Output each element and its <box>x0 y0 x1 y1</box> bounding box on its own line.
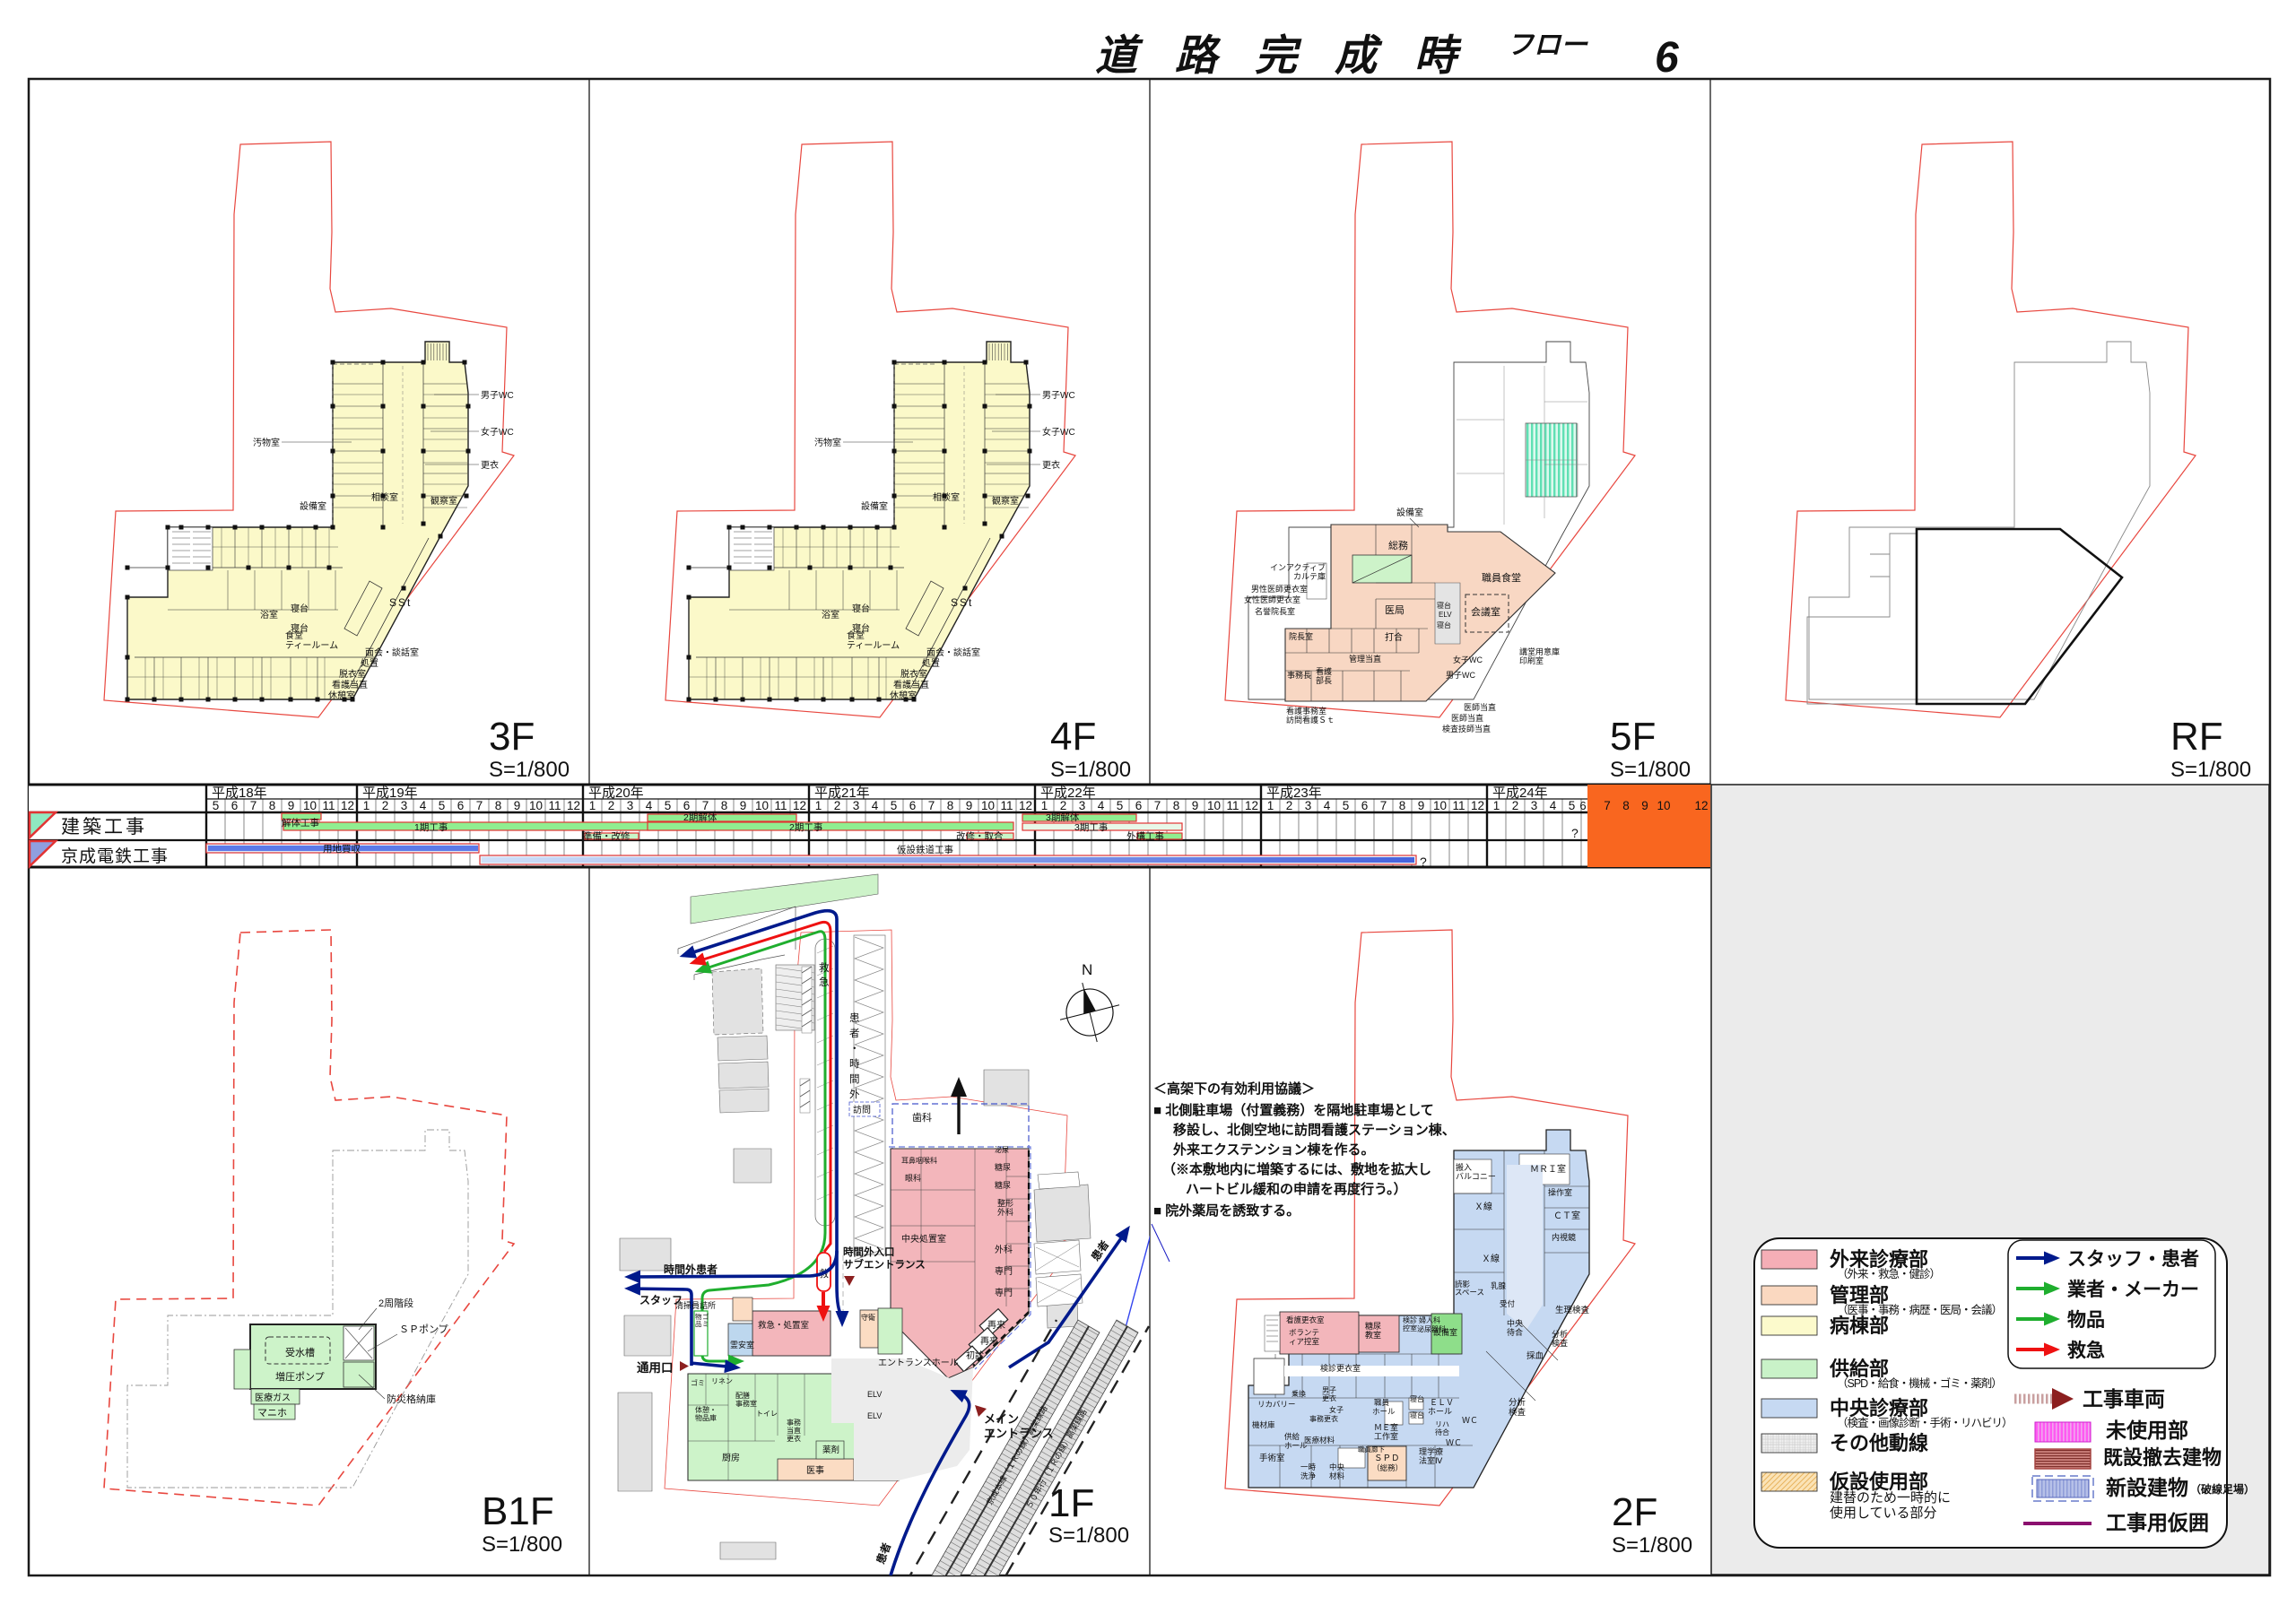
svg-text:厨房: 厨房 <box>722 1452 740 1463</box>
svg-text:分析: 分析 <box>1509 1397 1526 1408</box>
svg-text:医事: 医事 <box>806 1464 824 1476</box>
svg-text:12: 12 <box>1471 799 1484 812</box>
svg-text:待合: 待合 <box>1435 1428 1449 1436</box>
svg-text:10: 10 <box>1433 799 1447 812</box>
svg-text:守衛: 守衛 <box>861 1313 875 1322</box>
svg-text:生理検査: 生理検査 <box>1555 1305 1590 1315</box>
svg-text:ィア控室: ィア控室 <box>1289 1337 1320 1346</box>
svg-text:ＷＣ: ＷＣ <box>1446 1438 1462 1447</box>
svg-text:2期工事: 2期工事 <box>789 821 823 833</box>
svg-text:スペース: スペース <box>1455 1288 1484 1297</box>
svg-text:職員: 職員 <box>1374 1398 1390 1407</box>
svg-text:4F: 4F <box>1050 715 1096 759</box>
svg-text:事務室: 事務室 <box>735 1399 757 1408</box>
svg-text:検査: 検査 <box>1509 1407 1526 1418</box>
svg-text:平成23年: 平成23年 <box>1266 785 1322 801</box>
svg-text:3: 3 <box>1079 799 1086 812</box>
svg-text:ELV: ELV <box>867 1411 882 1420</box>
svg-text:（SPD・給食・機械・ゴミ・薬剤）: （SPD・給食・機械・ゴミ・薬剤） <box>1837 1376 2002 1390</box>
svg-text:SSt: SSt <box>389 596 412 609</box>
svg-text:6: 6 <box>231 799 239 812</box>
svg-text:10: 10 <box>1657 799 1670 812</box>
svg-text:4: 4 <box>420 799 427 812</box>
svg-text:寝台: 寝台 <box>1437 621 1451 629</box>
svg-text:7: 7 <box>1604 799 1611 812</box>
svg-text:7: 7 <box>928 799 935 812</box>
svg-text:看護事務室: 看護事務室 <box>1286 706 1326 716</box>
svg-text:2: 2 <box>1286 799 1293 812</box>
svg-text:採血: 採血 <box>1526 1350 1544 1361</box>
svg-text:8: 8 <box>721 799 728 812</box>
svg-text:S=1/800: S=1/800 <box>482 1532 562 1557</box>
svg-text:医師当直: 医師当直 <box>1464 702 1496 712</box>
svg-text:受水槽: 受水槽 <box>285 1347 315 1358</box>
svg-text:1: 1 <box>589 799 596 812</box>
svg-text:2: 2 <box>608 799 615 812</box>
svg-text:リネン: リネン <box>711 1377 733 1385</box>
svg-text:設備室: 設備室 <box>1433 1327 1457 1337</box>
svg-text:分析: 分析 <box>1552 1329 1568 1339</box>
svg-text:12: 12 <box>1245 799 1258 812</box>
svg-text:整形: 整形 <box>997 1198 1013 1208</box>
svg-text:S=1/800: S=1/800 <box>1612 1533 1692 1558</box>
svg-text:職員食堂: 職員食堂 <box>1482 571 1521 584</box>
svg-text:建築工事: 建築工事 <box>61 817 147 838</box>
svg-text:8: 8 <box>495 799 502 812</box>
svg-text:10: 10 <box>1207 799 1221 812</box>
svg-text:7: 7 <box>1154 799 1161 812</box>
svg-text:物品庫: 物品庫 <box>695 1413 717 1422</box>
svg-text:病棟部: 病棟部 <box>1830 1315 1889 1337</box>
svg-text:寝台: 寝台 <box>291 603 309 614</box>
svg-text:工事用仮囲: 工事用仮囲 <box>2106 1511 2209 1534</box>
svg-text:洗浄: 洗浄 <box>1300 1471 1317 1480</box>
svg-text:7: 7 <box>250 799 257 812</box>
svg-text:3期工事: 3期工事 <box>1074 821 1109 833</box>
svg-text:N: N <box>1082 961 1092 978</box>
svg-text:女子WC: 女子WC <box>1453 655 1483 664</box>
svg-text:汚物室: 汚物室 <box>253 437 280 448</box>
svg-text:外科: 外科 <box>997 1207 1013 1217</box>
svg-text:訪問: 訪問 <box>853 1104 871 1115</box>
svg-text:医師当直: 医師当直 <box>1451 713 1483 723</box>
svg-text:3: 3 <box>627 799 634 812</box>
svg-text:その他動線: その他動線 <box>1830 1432 1928 1454</box>
svg-text:管理当直: 管理当直 <box>1349 654 1381 664</box>
svg-text:工作室: 工作室 <box>1374 1431 1398 1441</box>
svg-text:設備室: 設備室 <box>1396 507 1423 518</box>
svg-text:処置: 処置 <box>361 657 378 669</box>
svg-text:平成18年: 平成18年 <box>212 785 267 801</box>
svg-text:中央処置室: 中央処置室 <box>901 1233 946 1245</box>
svg-text:＜高架下の有効利用協議＞: ＜高架下の有効利用協議＞ <box>1153 1081 1315 1097</box>
svg-text:平成19年: 平成19年 <box>362 785 418 801</box>
svg-text:ＭＲＩ室: ＭＲＩ室 <box>1530 1163 1566 1175</box>
svg-text:仮設鉄道工事: 仮設鉄道工事 <box>897 844 953 855</box>
svg-text:11: 11 <box>774 799 787 812</box>
svg-text:ホール: ホール <box>1428 1407 1452 1416</box>
svg-text:ELV: ELV <box>1439 611 1452 619</box>
svg-text:12: 12 <box>567 799 580 812</box>
svg-text:中央: 中央 <box>1507 1318 1523 1328</box>
svg-text:講堂用意庫: 講堂用意庫 <box>1519 647 1560 656</box>
svg-text:泌尿: 泌尿 <box>995 1145 1009 1154</box>
svg-text:2: 2 <box>834 799 841 812</box>
svg-text:1F: 1F <box>1048 1481 1094 1525</box>
svg-text:9: 9 <box>740 799 747 812</box>
svg-text:再来: 再来 <box>980 1336 998 1347</box>
svg-text:待合: 待合 <box>1507 1327 1523 1337</box>
svg-text:当直: 当直 <box>787 1426 801 1435</box>
svg-text:5: 5 <box>213 799 220 812</box>
svg-text:（検査・画像診断・手術・リハビリ）: （検査・画像診断・手術・リハビリ） <box>1837 1416 2013 1429</box>
svg-text:3: 3 <box>1305 799 1312 812</box>
svg-text:外科: 外科 <box>995 1244 1013 1255</box>
svg-text:6: 6 <box>1361 799 1369 812</box>
svg-text:医療ガス: 医療ガス <box>255 1392 291 1403</box>
svg-text:9: 9 <box>1192 799 1199 812</box>
svg-text:面会・談話室: 面会・談話室 <box>365 647 419 658</box>
svg-text:中央: 中央 <box>1329 1462 1345 1471</box>
svg-text:道路完成時: 道路完成時 <box>1095 31 1494 79</box>
svg-text:印刷室: 印刷室 <box>1519 655 1544 665</box>
svg-text:検査: 検査 <box>1552 1338 1568 1348</box>
svg-text:ゴミ: ゴミ <box>702 1312 709 1328</box>
svg-text:12: 12 <box>793 799 806 812</box>
svg-text:11: 11 <box>1226 799 1239 812</box>
svg-text:物品: 物品 <box>2067 1309 2105 1331</box>
svg-text:9: 9 <box>514 799 521 812</box>
svg-text:1期工事: 1期工事 <box>414 821 448 833</box>
svg-text:京成電鉄工事: 京成電鉄工事 <box>61 846 169 866</box>
svg-text:平成21年: 平成21年 <box>814 785 870 801</box>
svg-text:S=1/800: S=1/800 <box>1048 1523 1129 1548</box>
svg-text:眼科: 眼科 <box>905 1173 921 1183</box>
svg-text:訪問看護Ｓｔ: 訪問看護Ｓｔ <box>1286 715 1335 725</box>
svg-text:S=1/800: S=1/800 <box>489 758 570 782</box>
svg-text:ボランテ: ボランテ <box>1289 1328 1319 1337</box>
svg-text:救急: 救急 <box>2067 1340 2105 1361</box>
svg-text:12: 12 <box>1694 799 1708 812</box>
svg-text:男子WC: 男子WC <box>481 390 514 401</box>
svg-text:8: 8 <box>947 799 954 812</box>
svg-text:ＷＣ: ＷＣ <box>1462 1416 1478 1425</box>
svg-text:6: 6 <box>683 799 691 812</box>
svg-text:名誉院長室: 名誉院長室 <box>1255 606 1295 616</box>
svg-text:看護更衣室: 看護更衣室 <box>1286 1315 1325 1324</box>
svg-text:2: 2 <box>382 799 389 812</box>
svg-text:職員廊下: 職員廊下 <box>1358 1445 1385 1454</box>
svg-text:リハ: リハ <box>1435 1420 1449 1428</box>
svg-text:4: 4 <box>1324 799 1331 812</box>
svg-text:材料: 材料 <box>1329 1471 1345 1480</box>
svg-text:手術室: 手術室 <box>1259 1453 1285 1463</box>
svg-text:10: 10 <box>981 799 995 812</box>
svg-text:初診: 初診 <box>966 1350 984 1361</box>
svg-text:耳鼻咽喉科: 耳鼻咽喉科 <box>901 1156 937 1165</box>
svg-text:再来: 再来 <box>987 1320 1005 1331</box>
svg-text:更衣: 更衣 <box>1322 1393 1336 1402</box>
svg-text:供給: 供給 <box>1284 1432 1300 1441</box>
svg-text:脱衣室: 脱衣室 <box>339 668 366 680</box>
svg-text:ティールーム: ティールーム <box>285 640 338 651</box>
svg-text:休憩室: 休憩室 <box>328 690 355 701</box>
svg-text:院長室: 院長室 <box>1289 631 1313 641</box>
svg-text:（総務）: （総務） <box>1372 1463 1403 1472</box>
svg-text:?: ? <box>1571 826 1578 840</box>
svg-text:1: 1 <box>1267 799 1274 812</box>
svg-text:男性医師更衣室: 男性医師更衣室 <box>1251 584 1308 594</box>
svg-text:ＭＥ室: ＭＥ室 <box>1374 1422 1398 1432</box>
svg-text:6: 6 <box>1655 34 1679 82</box>
svg-text:インアクティブ: インアクティブ <box>1270 562 1326 572</box>
svg-text:観察室: 観察室 <box>430 495 457 507</box>
svg-text:ハートビル緩和の申請を再度行う。）: ハートビル緩和の申請を再度行う。） <box>1186 1181 1407 1197</box>
svg-text:専門: 専門 <box>995 1288 1013 1298</box>
svg-text:救急・処置室: 救急・処置室 <box>758 1320 809 1331</box>
svg-text:総務: 総務 <box>1388 539 1408 551</box>
svg-text:ELV: ELV <box>867 1390 882 1399</box>
svg-text:外来エクステンション棟を作る。: 外来エクステンション棟を作る。 <box>1172 1141 1375 1158</box>
svg-text:患者: 患者 <box>874 1541 893 1566</box>
svg-text:RF: RF <box>2170 715 2223 759</box>
svg-text:時間外入口: 時間外入口 <box>843 1245 895 1258</box>
svg-text:S=1/800: S=1/800 <box>1050 758 1131 782</box>
svg-text:6: 6 <box>1579 799 1586 812</box>
svg-text:相談室: 相談室 <box>371 491 398 503</box>
svg-text:医局: 医局 <box>1385 604 1405 616</box>
svg-text:更衣: 更衣 <box>787 1434 801 1443</box>
svg-text:用地買収: 用地買収 <box>323 843 361 855</box>
svg-text:更衣: 更衣 <box>481 459 499 471</box>
svg-text:6: 6 <box>909 799 917 812</box>
svg-text:事務: 事務 <box>787 1418 801 1427</box>
svg-text:法室Ⅳ: 法室Ⅳ <box>1419 1455 1443 1465</box>
svg-text:看護: 看護 <box>1316 666 1332 676</box>
svg-text:（破線足場）: （破線足場） <box>2190 1482 2255 1496</box>
svg-text:6: 6 <box>1135 799 1143 812</box>
svg-text:11: 11 <box>548 799 561 812</box>
svg-text:7: 7 <box>702 799 709 812</box>
svg-text:移設し、北側空地に訪問看護ステーション棟、: 移設し、北側空地に訪問看護ステーション棟、 <box>1173 1122 1456 1138</box>
svg-text:会議室: 会議室 <box>1471 605 1500 618</box>
svg-text:未使用部: 未使用部 <box>2106 1419 2188 1442</box>
svg-text:エントランスホール: エントランスホール <box>878 1358 959 1368</box>
svg-text:4: 4 <box>872 799 879 812</box>
svg-text:搬入: 搬入 <box>1456 1162 1472 1172</box>
svg-text:4: 4 <box>1550 799 1557 812</box>
svg-text:使用している部分: 使用している部分 <box>1830 1506 1937 1521</box>
svg-text:事務更衣: 事務更衣 <box>1309 1414 1338 1423</box>
svg-text:2周階段: 2周階段 <box>378 1297 413 1309</box>
svg-text:建替のため一時的に: 建替のため一時的に <box>1830 1490 1951 1506</box>
svg-text:5: 5 <box>439 799 446 812</box>
svg-text:改修・取合: 改修・取合 <box>956 830 1004 842</box>
svg-text:打合: 打合 <box>1385 631 1403 643</box>
svg-text:8: 8 <box>1173 799 1180 812</box>
svg-text:寝台: 寝台 <box>1410 1394 1424 1403</box>
svg-text:歯科: 歯科 <box>912 1111 932 1124</box>
svg-text:操作室: 操作室 <box>1548 1187 1572 1197</box>
svg-text:ゴミ: ゴミ <box>691 1378 705 1387</box>
svg-text:1: 1 <box>815 799 822 812</box>
svg-text:3: 3 <box>401 799 408 812</box>
svg-text:10: 10 <box>755 799 769 812</box>
svg-text:8: 8 <box>1399 799 1406 812</box>
svg-text:2: 2 <box>1060 799 1067 812</box>
svg-text:4: 4 <box>646 799 653 812</box>
svg-text:S=1/800: S=1/800 <box>1610 758 1691 782</box>
svg-text:2: 2 <box>1512 799 1519 812</box>
svg-text:メイン: メイン <box>984 1412 1019 1426</box>
svg-text:S=1/800: S=1/800 <box>2170 758 2251 782</box>
svg-text:通用口: 通用口 <box>637 1361 674 1375</box>
svg-text:ホール: ホール <box>1372 1407 1396 1416</box>
svg-text:トイレ: トイレ <box>756 1410 778 1418</box>
svg-text:■ 院外薬局を誘致する。: ■ 院外薬局を誘致する。 <box>1153 1202 1300 1219</box>
svg-text:5: 5 <box>1569 799 1576 812</box>
svg-text:食堂: 食堂 <box>285 629 303 641</box>
svg-text:新設建物: 新設建物 <box>2106 1476 2188 1499</box>
svg-text:業者・メーカー: 業者・メーカー <box>2067 1279 2199 1300</box>
svg-text:浴室: 浴室 <box>260 609 278 621</box>
svg-text:平成24年: 平成24年 <box>1492 785 1548 801</box>
svg-text:検診更衣室: 検診更衣室 <box>1320 1363 1361 1373</box>
svg-text:5: 5 <box>1343 799 1350 812</box>
svg-text:7: 7 <box>476 799 483 812</box>
svg-text:工事車両: 工事車両 <box>2083 1387 2165 1410</box>
svg-text:内視鏡: 内視鏡 <box>1552 1232 1576 1242</box>
svg-text:防災格納庫: 防災格納庫 <box>387 1393 436 1405</box>
svg-text:受付: 受付 <box>1500 1299 1516 1308</box>
svg-text:一時: 一時 <box>1300 1462 1317 1471</box>
svg-text:糖尿: 糖尿 <box>995 1162 1011 1172</box>
svg-text:男子: 男子 <box>1322 1386 1336 1394</box>
svg-text:増圧ポンプ: 増圧ポンプ <box>275 1371 325 1383</box>
svg-text:10: 10 <box>303 799 317 812</box>
svg-text:5: 5 <box>891 799 898 812</box>
svg-text:看護当直: 看護当直 <box>332 679 368 690</box>
svg-text:理学療: 理学療 <box>1419 1446 1443 1456</box>
svg-text:寝台: 寝台 <box>1410 1410 1424 1419</box>
svg-text:機材庫: 機材庫 <box>1252 1420 1275 1429</box>
svg-text:設備室: 設備室 <box>300 500 326 512</box>
svg-text:時間外患者: 時間外患者 <box>664 1263 717 1276</box>
svg-text:既設撤去建物: 既設撤去建物 <box>2103 1446 2222 1469</box>
svg-text:検診: 検診 <box>1403 1315 1417 1324</box>
svg-text:平成20年: 平成20年 <box>588 785 644 801</box>
svg-text:事務長: 事務長 <box>1287 670 1311 680</box>
svg-text:5F: 5F <box>1610 715 1656 759</box>
svg-text:控室: 控室 <box>1403 1324 1417 1332</box>
svg-text:9: 9 <box>1641 799 1648 812</box>
svg-text:9: 9 <box>1418 799 1425 812</box>
svg-text:乗換: 乗換 <box>1291 1389 1306 1398</box>
svg-text:ＥＬＶ: ＥＬＶ <box>1430 1398 1454 1407</box>
svg-text:9: 9 <box>966 799 973 812</box>
svg-text:スタッフ・患者: スタッフ・患者 <box>2067 1248 2199 1270</box>
svg-text:1: 1 <box>1493 799 1500 812</box>
svg-text:8: 8 <box>1622 799 1630 812</box>
svg-text:5: 5 <box>1117 799 1124 812</box>
svg-text:体憩・: 体憩・ <box>695 1405 717 1414</box>
svg-text:物品: 物品 <box>695 1312 702 1328</box>
svg-text:（外来・救急・健診）: （外来・救急・健診） <box>1837 1267 1940 1280</box>
svg-text:リカバリー: リカバリー <box>1257 1400 1296 1409</box>
svg-text:9: 9 <box>288 799 295 812</box>
svg-text:■ 北側駐車場（付置義務）を隔地駐車場として: ■ 北側駐車場（付置義務）を隔地駐車場として <box>1153 1102 1434 1118</box>
svg-text:5: 5 <box>665 799 672 812</box>
svg-text:女子: 女子 <box>1329 1405 1344 1414</box>
svg-text:2期解体: 2期解体 <box>683 811 717 823</box>
svg-text:教室: 教室 <box>1365 1330 1381 1340</box>
svg-text:8: 8 <box>269 799 276 812</box>
svg-text:糖尿: 糖尿 <box>995 1180 1011 1190</box>
svg-text:4: 4 <box>1098 799 1105 812</box>
svg-text:男子WC: 男子WC <box>1446 671 1475 680</box>
svg-text:サブエントランス: サブエントランス <box>843 1258 926 1271</box>
svg-text:マニホ: マニホ <box>257 1407 287 1419</box>
svg-text:?: ? <box>1420 855 1427 869</box>
svg-text:11: 11 <box>322 799 335 812</box>
svg-text:10: 10 <box>529 799 543 812</box>
svg-text:準備・改修: 準備・改修 <box>583 830 631 842</box>
svg-text:バルコニー: バルコニー <box>1456 1172 1496 1181</box>
svg-text:12: 12 <box>341 799 354 812</box>
svg-text:医療材料: 医療材料 <box>1304 1436 1335 1445</box>
svg-text:解体工事: 解体工事 <box>282 817 319 829</box>
svg-text:カルテ庫: カルテ庫 <box>1293 571 1326 581</box>
svg-text:ＳＰポンプ: ＳＰポンプ <box>399 1324 448 1335</box>
svg-text:配膳: 配膳 <box>735 1391 750 1400</box>
svg-text:1: 1 <box>1041 799 1048 812</box>
svg-text:霊安室: 霊安室 <box>730 1340 754 1350</box>
svg-text:3: 3 <box>853 799 860 812</box>
svg-text:（※本敷地内に増築するには、敷地を拡大し: （※本敷地内に増築するには、敷地を拡大し <box>1162 1161 1431 1177</box>
svg-text:Ｘ線: Ｘ線 <box>1474 1201 1492 1212</box>
svg-text:婦人科: 婦人科 <box>1419 1315 1440 1324</box>
svg-text:フロー: フロー <box>1507 30 1588 60</box>
svg-text:3: 3 <box>1531 799 1538 812</box>
svg-text:外構工事: 外構工事 <box>1126 830 1164 842</box>
svg-text:女性医師更衣室: 女性医師更衣室 <box>1244 595 1300 604</box>
svg-text:1: 1 <box>363 799 370 812</box>
svg-text:女子WC: 女子WC <box>481 426 514 438</box>
svg-text:Ｘ線: Ｘ線 <box>1482 1253 1500 1264</box>
svg-text:専門: 専門 <box>995 1266 1013 1277</box>
svg-text:3F: 3F <box>489 715 535 759</box>
svg-text:11: 11 <box>1452 799 1465 812</box>
svg-text:12: 12 <box>1019 799 1032 812</box>
svg-text:検査技師当直: 検査技師当直 <box>1442 724 1491 733</box>
svg-text:7: 7 <box>1380 799 1387 812</box>
svg-text:部長: 部長 <box>1316 675 1332 685</box>
svg-text:ＣＴ室: ＣＴ室 <box>1553 1210 1580 1221</box>
svg-text:清掃員詰所: 清掃員詰所 <box>675 1300 716 1310</box>
svg-text:B1F: B1F <box>482 1489 554 1533</box>
svg-text:2F: 2F <box>1612 1490 1657 1534</box>
svg-text:薬剤: 薬剤 <box>822 1445 839 1455</box>
svg-text:乳腺: 乳腺 <box>1491 1281 1507 1290</box>
svg-text:ＳＰＤ: ＳＰＤ <box>1374 1454 1400 1463</box>
svg-text:寝台: 寝台 <box>1437 601 1451 610</box>
svg-text:平成22年: 平成22年 <box>1040 785 1096 801</box>
svg-text:エントランス: エントランス <box>984 1427 1054 1440</box>
svg-text:6: 6 <box>457 799 465 812</box>
svg-text:糖尿: 糖尿 <box>1365 1321 1381 1331</box>
svg-text:11: 11 <box>1000 799 1013 812</box>
